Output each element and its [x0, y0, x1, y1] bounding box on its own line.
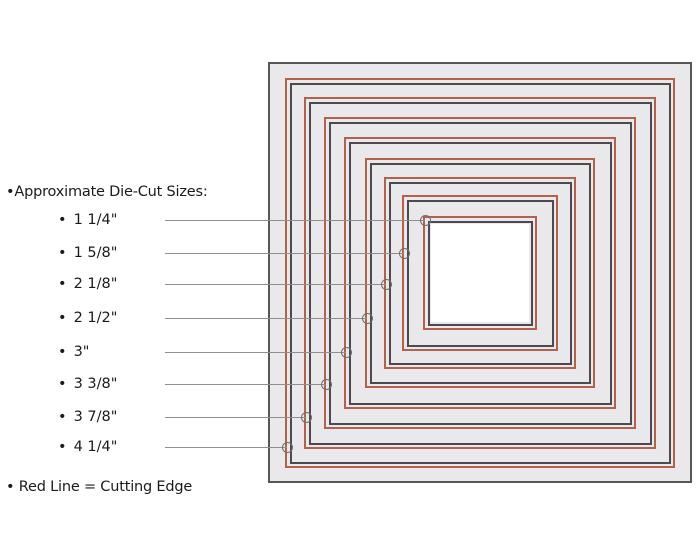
bullet-icon: •: [58, 439, 67, 455]
pointer-marker-circle: [381, 279, 392, 290]
pointer-line: [165, 384, 326, 385]
pointer-line: [165, 352, 346, 353]
die-cut-diagram-canvas: •Approximate Die-Cut Sizes: •1 1/4"•1 5/…: [0, 0, 696, 557]
size-label-row: •3": [58, 342, 89, 362]
pointer-marker-circle: [399, 248, 410, 259]
size-label: 3 7/8": [74, 409, 118, 425]
size-label-row: •3 3/8": [58, 374, 117, 394]
pointer-marker-circle: [282, 442, 293, 453]
size-label-row: •4 1/4": [58, 437, 117, 457]
bullet-icon: •: [58, 212, 67, 228]
size-label: 3": [74, 344, 90, 360]
pointer-line: [165, 220, 425, 221]
pointer-line: [165, 417, 306, 418]
bullet-icon: •: [58, 276, 67, 292]
size-label-row: •2 1/2": [58, 308, 117, 328]
size-label-row: •1 1/4": [58, 210, 117, 230]
pointer-line: [165, 447, 287, 448]
size-label-row: •1 5/8": [58, 243, 117, 263]
bullet-icon: •: [58, 409, 67, 425]
pointer-marker-circle: [362, 313, 373, 324]
size-label-row: •3 7/8": [58, 407, 117, 427]
cutting-edge-legend: • Red Line = Cutting Edge: [6, 479, 192, 495]
size-label: 4 1/4": [74, 439, 118, 455]
size-label: 2 1/8": [74, 276, 118, 292]
pointer-marker-circle: [321, 379, 332, 390]
pointer-line: [165, 318, 367, 319]
pointer-marker-circle: [341, 347, 352, 358]
bullet-icon: •: [58, 344, 67, 360]
pointer-line: [165, 284, 386, 285]
page-title: •Approximate Die-Cut Sizes:: [6, 184, 208, 200]
size-label-row: •2 1/8": [58, 274, 117, 294]
bullet-icon: •: [58, 310, 67, 326]
bullet-icon: •: [58, 245, 67, 261]
size-label: 1 1/4": [74, 212, 118, 228]
size-label: 2 1/2": [74, 310, 118, 326]
size-label: 1 5/8": [74, 245, 118, 261]
die-edge-square: [290, 83, 671, 464]
bullet-icon: •: [58, 376, 67, 392]
pointer-marker-circle: [301, 412, 312, 423]
pointer-marker-circle: [420, 215, 431, 226]
pointer-line: [165, 253, 404, 254]
size-label: 3 3/8": [74, 376, 118, 392]
